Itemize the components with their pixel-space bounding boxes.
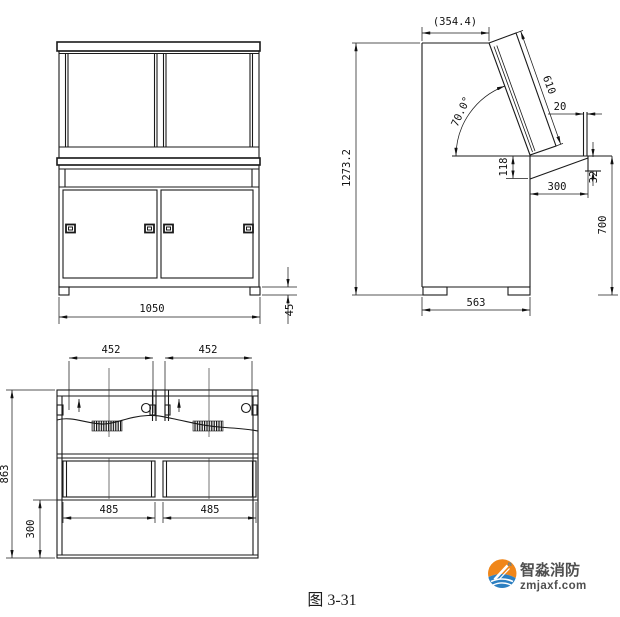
front-lower-door-left — [63, 190, 157, 278]
dim-edge-thickness: 32 — [588, 171, 600, 184]
svg-text:n: n — [508, 562, 512, 568]
front-door-handles — [66, 225, 253, 233]
side-view-outline — [422, 33, 612, 295]
logo: n 智淼消防 zmjaxf.com — [488, 559, 587, 592]
dim-side-overall-height: 1273.2 — [341, 149, 353, 187]
vent-grille-right — [193, 421, 223, 431]
dim-panel-angle: 70.0° — [449, 95, 473, 129]
dim-front-width: 1050 — [139, 303, 164, 315]
cable-grommet-left — [142, 404, 151, 413]
dim-plan-overall-depth: 863 — [0, 465, 11, 484]
vent-grille-left — [92, 421, 122, 431]
figure-caption: 图 3-31 — [307, 592, 356, 609]
dim-plan-front-depth: 300 — [25, 520, 37, 539]
drawing-sheet: 1050 45 — [0, 0, 620, 617]
door-handle-icon — [244, 225, 253, 233]
latch-notch — [165, 405, 170, 415]
dim-side-top-depth: (354.4) — [433, 16, 477, 28]
door-handle-icon — [164, 225, 173, 233]
front-foot-right — [250, 287, 260, 295]
dim-plan-span-left: 452 — [102, 344, 121, 356]
side-view-dimensions: (354.4) 1273.2 610 70.0° 20 118 — [341, 16, 618, 316]
dim-plan-door-left: 485 — [100, 504, 119, 516]
plan-view-outline — [57, 390, 258, 558]
door-handle-icon — [66, 225, 75, 233]
plan-view-features — [57, 368, 257, 499]
cable-grommet-right — [242, 404, 251, 413]
dim-desk-height: 700 — [597, 216, 609, 235]
technical-drawing: 1050 45 — [0, 0, 620, 617]
dim-plan-door-right: 485 — [201, 504, 220, 516]
door-handle-icon — [145, 225, 154, 233]
dim-cabinet-depth: 563 — [467, 297, 486, 309]
dim-recess-drop: 118 — [498, 158, 510, 177]
front-lower-door-right — [161, 190, 253, 278]
dim-front-foot-height: 45 — [284, 304, 296, 317]
dim-plan-span-right: 452 — [199, 344, 218, 356]
side-view: (354.4) 1273.2 610 70.0° 20 118 — [341, 16, 618, 316]
dim-desk-overhang: 300 — [548, 181, 567, 193]
front-foot-left — [59, 287, 69, 295]
plan-view-dimensions: 452 452 863 300 485 485 — [0, 344, 256, 558]
front-view-dimensions: 1050 45 — [59, 267, 297, 324]
front-view: 1050 45 — [57, 42, 297, 324]
side-foot-front — [508, 287, 530, 295]
front-view-outline — [57, 42, 260, 295]
plan-view: 452 452 863 300 485 485 — [0, 344, 258, 558]
dim-lip-width: 20 — [554, 101, 567, 113]
logo-site: zmjaxf.com — [520, 580, 587, 592]
logo-icon: n — [488, 559, 516, 588]
logo-name: 智淼消防 — [520, 561, 580, 579]
side-foot-back — [423, 287, 447, 295]
